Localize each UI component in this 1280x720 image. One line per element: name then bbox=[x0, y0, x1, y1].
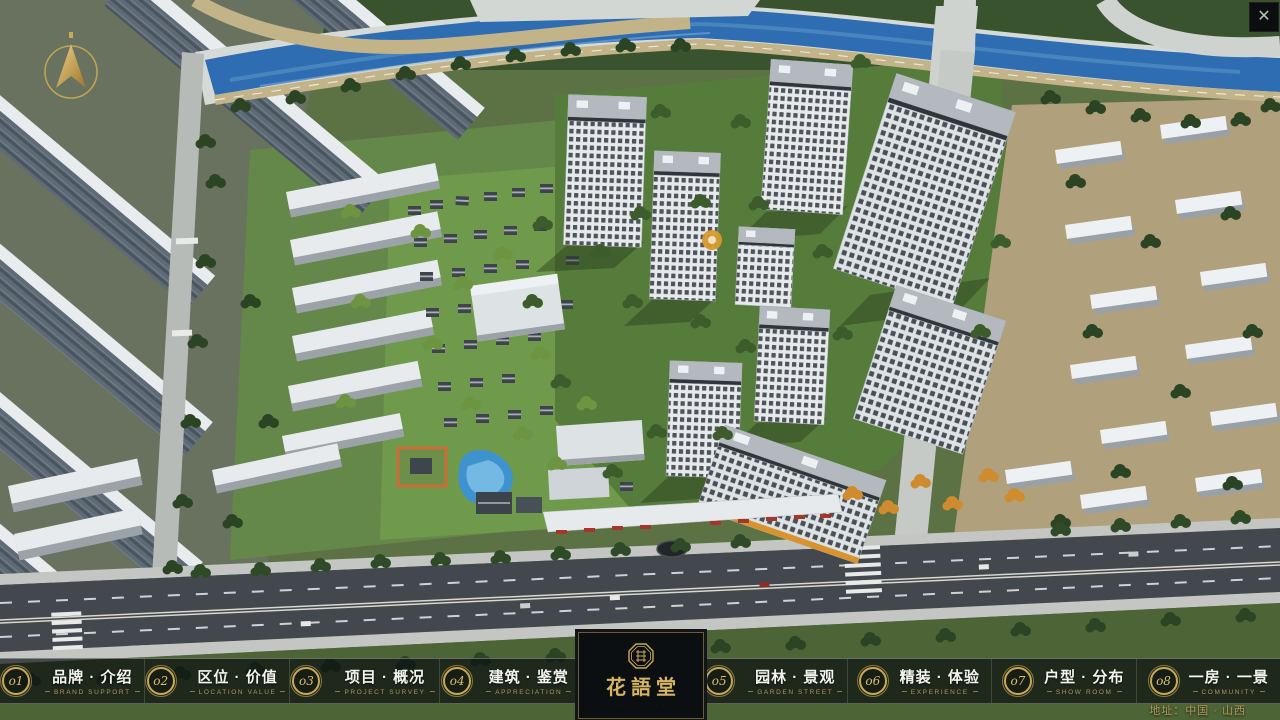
nav-label: 品牌 · 介绍 bbox=[52, 666, 132, 687]
nav-item-garden-landscape[interactable]: o5 园林 · 景观 GARDEN STREET bbox=[702, 659, 847, 703]
project-address: 地址：中国 · 山西 bbox=[1149, 702, 1246, 718]
nav-badge: o6 bbox=[857, 665, 889, 697]
nav-badge: o4 bbox=[441, 665, 473, 697]
nav-label: 区位 · 价值 bbox=[197, 666, 277, 687]
nav-label: 项目 · 概况 bbox=[345, 666, 425, 687]
nav-sublabel: PROJECT SURVEY bbox=[331, 689, 438, 696]
close-button[interactable]: ✕ bbox=[1249, 2, 1279, 32]
nav-badge: o7 bbox=[1002, 665, 1034, 697]
project-logo-home-button[interactable]: 花語堂 · · · · · · · · · · · · bbox=[578, 632, 704, 719]
nav-badge: o2 bbox=[145, 665, 177, 697]
compass-north-indicator bbox=[42, 30, 100, 106]
nav-item-architecture[interactable]: o4 建筑 · 鉴赏 APPRECIATION bbox=[440, 659, 578, 703]
close-icon: ✕ bbox=[1257, 9, 1270, 25]
presentation-window: ✕ o1 品牌 · 介绍 BRAND SUPPORT o2 区位 · 价值 LO… bbox=[0, 0, 1280, 720]
nav-item-decor-experience[interactable]: o6 精装 · 体验 EXPERIENCE bbox=[847, 659, 992, 703]
nav-label: 建筑 · 鉴赏 bbox=[489, 666, 569, 687]
seal-emblem-icon bbox=[628, 643, 654, 669]
nav-badge: o8 bbox=[1148, 665, 1180, 697]
nav-label: 户型 · 分布 bbox=[1044, 666, 1124, 687]
nav-label: 一房 · 一景 bbox=[1189, 666, 1269, 687]
nav-sublabel: APPRECIATION bbox=[482, 689, 575, 696]
nav-item-room-view[interactable]: o8 一房 · 一景 COMMUNITY bbox=[1136, 659, 1280, 703]
nav-item-project-overview[interactable]: o3 项目 · 概况 PROJECT SURVEY bbox=[290, 659, 439, 703]
project-name-subtitle: · · · · · · · · · · · · bbox=[604, 703, 678, 708]
nav-label: 园林 · 景观 bbox=[755, 666, 835, 687]
nav-badge: o1 bbox=[0, 665, 32, 697]
nav-sublabel: COMMUNITY bbox=[1189, 689, 1269, 696]
nav-item-floorplans[interactable]: o7 户型 · 分布 SHOW ROOM bbox=[991, 659, 1136, 703]
north-arrow-icon bbox=[56, 44, 86, 88]
nav-item-brand-intro[interactable]: o1 品牌 · 介绍 BRAND SUPPORT bbox=[0, 659, 145, 703]
nav-sublabel: BRAND SUPPORT bbox=[41, 689, 144, 696]
nav-label: 精装 · 体验 bbox=[900, 666, 980, 687]
nav-group-right: o5 园林 · 景观 GARDEN STREET o6 精装 · 体验 EXPE… bbox=[702, 659, 1280, 703]
nav-badge: o3 bbox=[290, 665, 322, 697]
compass-top-mark bbox=[69, 32, 73, 38]
project-name: 花語堂 bbox=[601, 671, 681, 700]
nav-sublabel: GARDEN STREET bbox=[744, 689, 846, 696]
aerial-masterplan-render[interactable] bbox=[0, 0, 1280, 720]
nav-sublabel: LOCATION VALUE bbox=[186, 689, 290, 696]
nav-sublabel: SHOW ROOM bbox=[1043, 689, 1126, 696]
nav-sublabel: EXPERIENCE bbox=[898, 689, 982, 696]
nav-badge: o5 bbox=[703, 665, 735, 697]
nav-group-left: o1 品牌 · 介绍 BRAND SUPPORT o2 区位 · 价值 LOCA… bbox=[0, 659, 578, 703]
nav-item-location-value[interactable]: o2 区位 · 价值 LOCATION VALUE bbox=[145, 659, 291, 703]
